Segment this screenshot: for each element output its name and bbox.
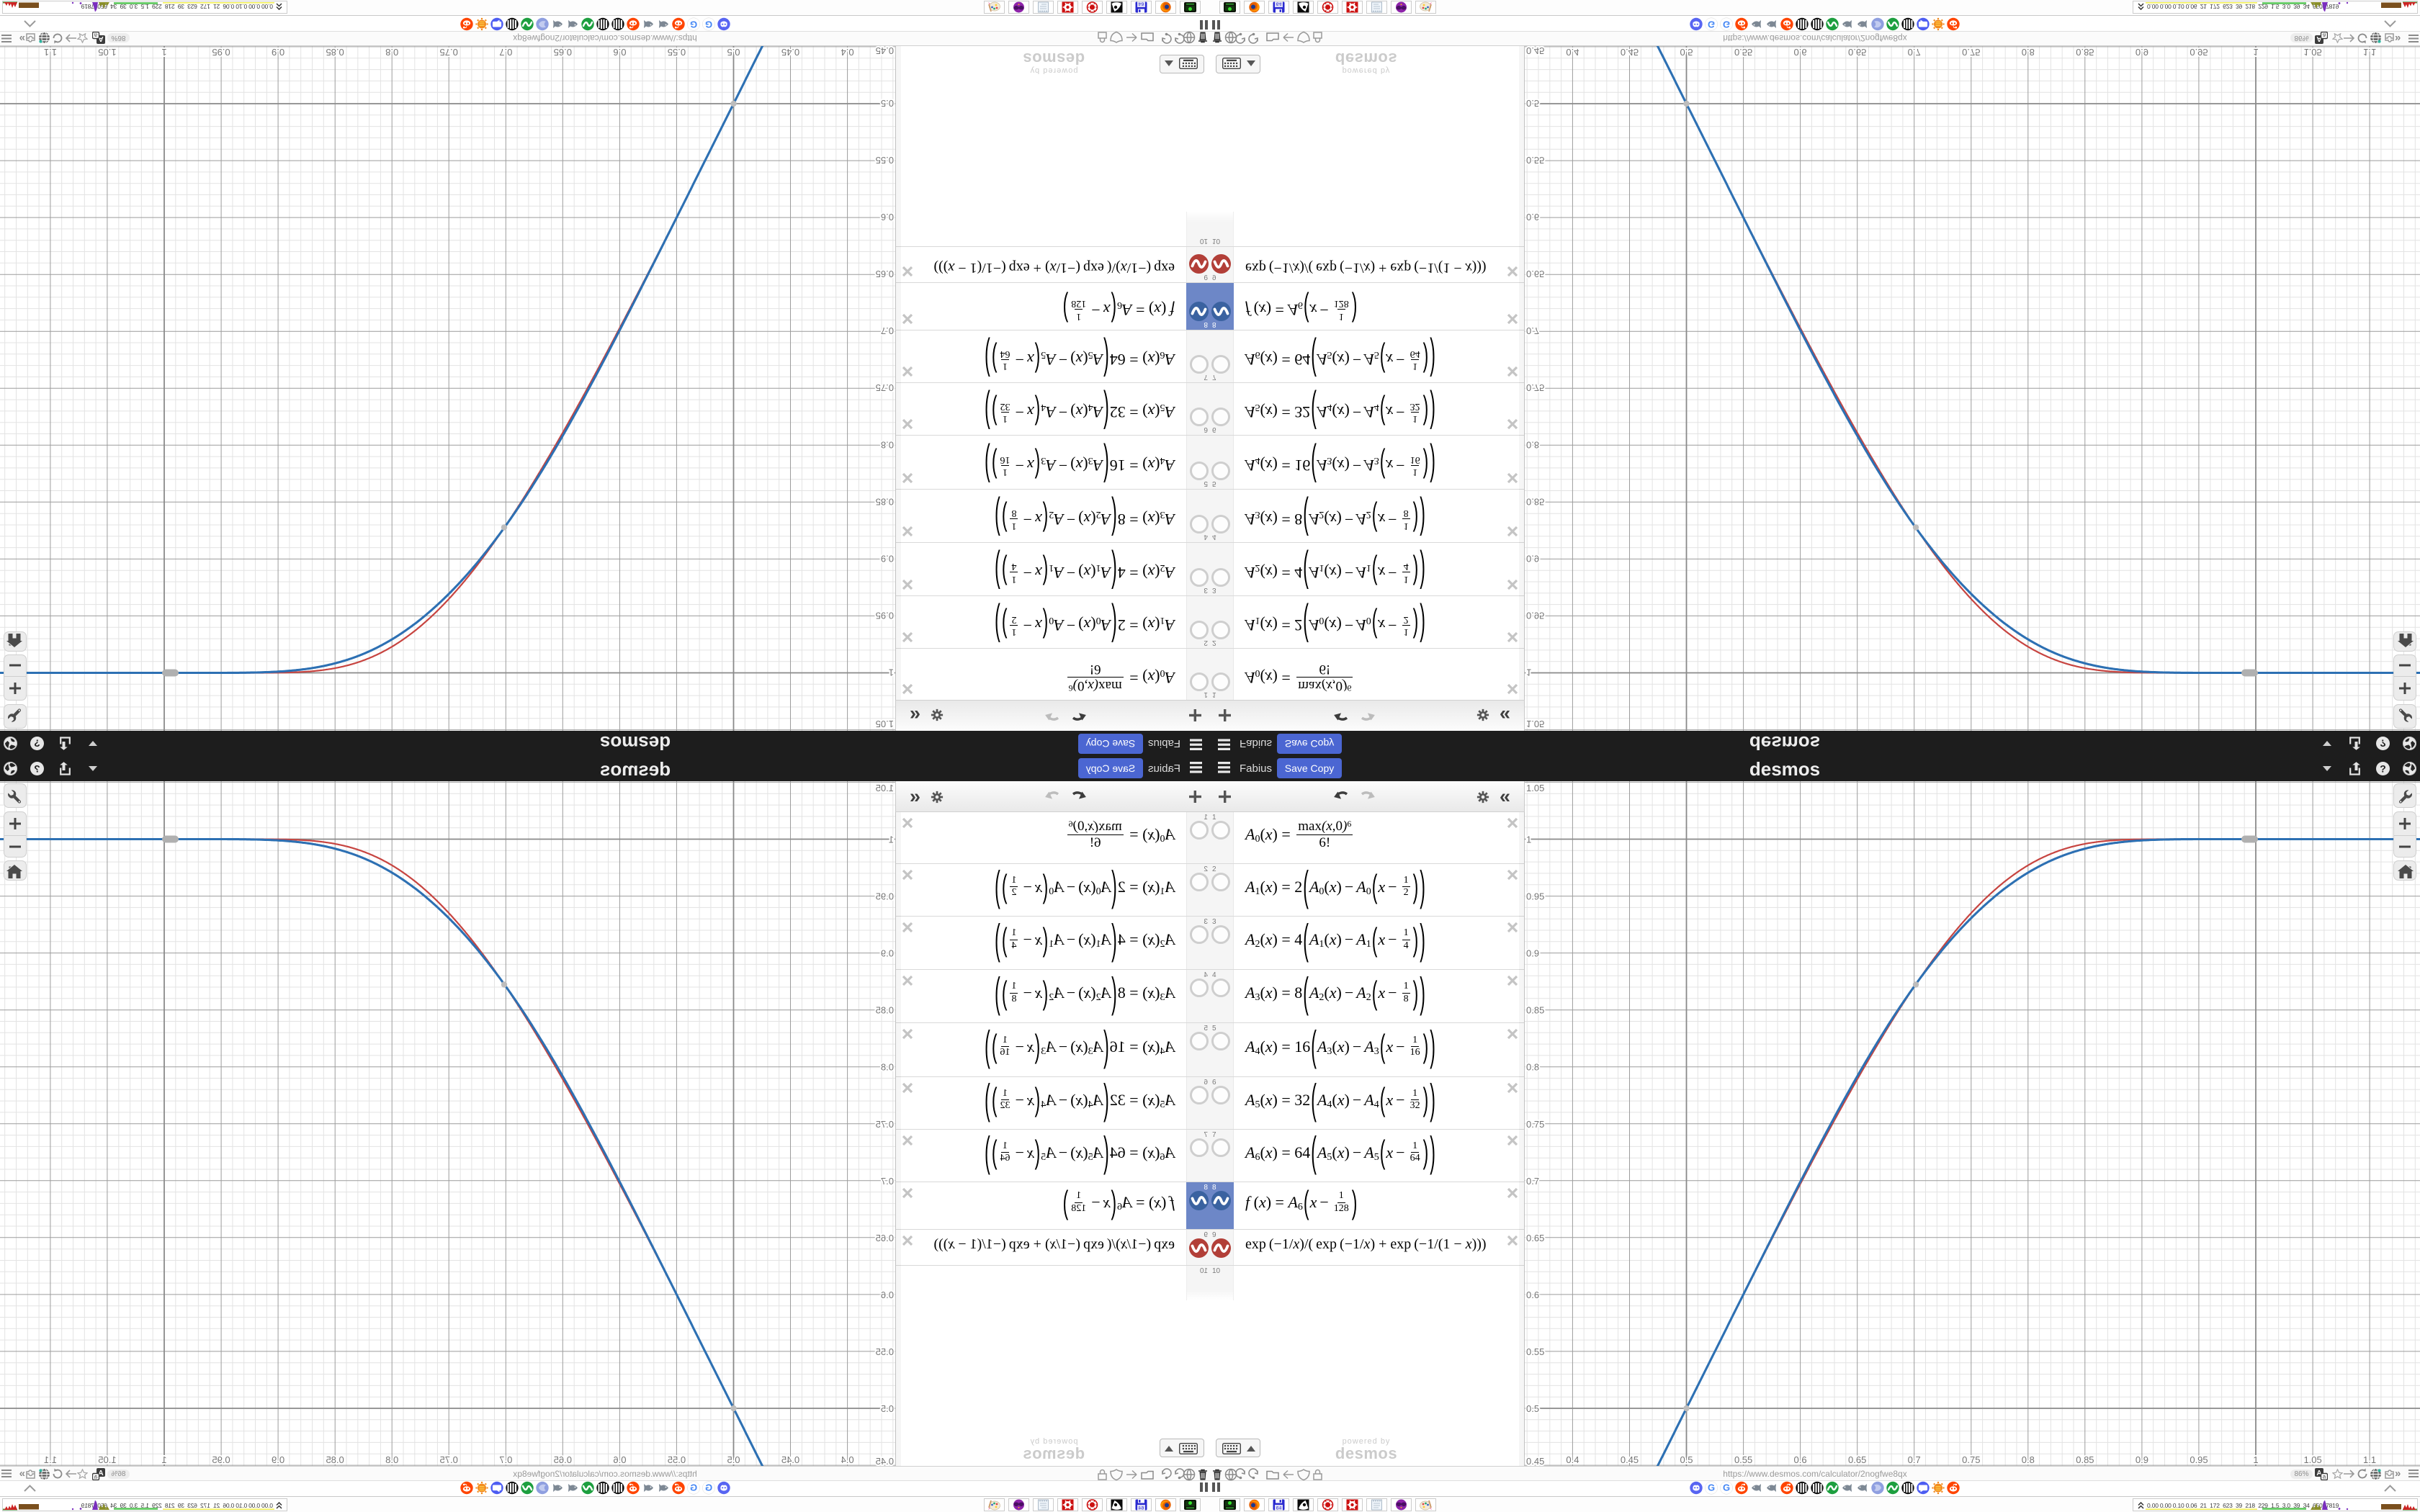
svg-text:0.5: 0.5 [727, 1454, 740, 1465]
svg-text:0.85: 0.85 [2076, 1454, 2094, 1465]
svg-text:?: ? [34, 763, 40, 775]
svg-text:G: G [705, 1482, 712, 1493]
svg-text:64: 64 [1276, 1, 1282, 6]
svg-text:0.5: 0.5 [881, 98, 894, 109]
svg-text:0.6: 0.6 [1794, 1454, 1807, 1465]
svg-text:?: ? [2380, 763, 2386, 775]
svg-text:0.85: 0.85 [326, 47, 344, 58]
svg-text:0.45: 0.45 [1526, 46, 1544, 56]
svg-text:0.65: 0.65 [876, 1233, 894, 1243]
svg-text:1: 1 [1526, 834, 1531, 845]
svg-text:1.05: 1.05 [876, 719, 894, 729]
svg-text:0.95: 0.95 [212, 47, 230, 58]
svg-text:1.05: 1.05 [1526, 783, 1544, 793]
svg-text:0.5: 0.5 [1526, 1403, 1539, 1414]
svg-text:0.5: 0.5 [1680, 1454, 1693, 1465]
svg-text:G: G [1708, 19, 1715, 30]
svg-text:0.45: 0.45 [781, 1454, 799, 1465]
svg-text:?: ? [34, 738, 40, 750]
svg-text:1.05: 1.05 [2303, 1454, 2321, 1465]
svg-text:0.75: 0.75 [876, 1119, 894, 1130]
svg-text:0.45: 0.45 [1621, 47, 1639, 58]
svg-text:0.4: 0.4 [841, 1454, 854, 1465]
svg-text:a: a [2323, 1474, 2326, 1480]
svg-text:1: 1 [889, 667, 894, 678]
svg-text:0.5: 0.5 [727, 47, 740, 58]
svg-text:0.95: 0.95 [212, 1454, 230, 1465]
svg-text:G: G [1723, 19, 1730, 30]
svg-text:1.1: 1.1 [2363, 1454, 2376, 1465]
svg-text:0.7: 0.7 [1908, 47, 1921, 58]
svg-text:0.75: 0.75 [1526, 1119, 1544, 1130]
svg-text:0.95: 0.95 [876, 610, 894, 621]
svg-text:64: 64 [1276, 1506, 1282, 1511]
svg-text:0.75: 0.75 [876, 382, 894, 393]
svg-text:1.05: 1.05 [1526, 719, 1544, 729]
svg-text:0.8: 0.8 [385, 47, 398, 58]
svg-text:0.7: 0.7 [1526, 1176, 1539, 1187]
svg-text:0.55: 0.55 [1734, 1454, 1752, 1465]
svg-text:0.55: 0.55 [876, 1346, 894, 1357]
svg-text:0.95: 0.95 [1526, 610, 1544, 621]
svg-text:0.85: 0.85 [1526, 1005, 1544, 1016]
svg-text:0.85: 0.85 [326, 1454, 344, 1465]
svg-text:1.05: 1.05 [98, 1454, 116, 1465]
svg-text:0.55: 0.55 [1526, 1346, 1544, 1357]
svg-text:0.65: 0.65 [554, 47, 572, 58]
svg-text:0.7: 0.7 [499, 1454, 512, 1465]
svg-text:0.85: 0.85 [2076, 47, 2094, 58]
svg-text:0.9: 0.9 [881, 948, 894, 959]
svg-text:0.8: 0.8 [881, 1062, 894, 1073]
svg-text:0.65: 0.65 [1848, 1454, 1866, 1465]
svg-text:0.4: 0.4 [841, 47, 854, 58]
svg-text:0.9: 0.9 [2136, 1454, 2148, 1465]
svg-text:0.95: 0.95 [2190, 1454, 2208, 1465]
svg-text:0.45: 0.45 [781, 47, 799, 58]
svg-text:0.5: 0.5 [881, 1403, 894, 1414]
svg-text:0.6: 0.6 [1526, 212, 1539, 222]
svg-text:64: 64 [1139, 1506, 1144, 1511]
svg-text:a: a [94, 1474, 97, 1480]
svg-text:a: a [2323, 32, 2326, 38]
svg-text:0.95: 0.95 [2190, 47, 2208, 58]
svg-text:0.5: 0.5 [1680, 47, 1693, 58]
svg-text:0.9: 0.9 [272, 47, 284, 58]
svg-text:G: G [690, 1482, 697, 1493]
svg-text:0.7: 0.7 [881, 325, 894, 336]
svg-text:0.45: 0.45 [876, 1456, 894, 1466]
svg-text:0.8: 0.8 [2022, 1454, 2035, 1465]
svg-text:0.9: 0.9 [272, 1454, 284, 1465]
svg-text:1.05: 1.05 [98, 47, 116, 58]
svg-text:0.95: 0.95 [1526, 891, 1544, 902]
svg-text:0.75: 0.75 [1962, 1454, 1980, 1465]
svg-text:G: G [705, 19, 712, 30]
svg-text:0.6: 0.6 [1526, 1290, 1539, 1300]
svg-text:0.6: 0.6 [1794, 47, 1807, 58]
svg-text:0.4: 0.4 [1566, 47, 1579, 58]
svg-text:0.55: 0.55 [876, 155, 894, 166]
svg-text:0.45: 0.45 [876, 46, 894, 56]
svg-text:?: ? [2380, 738, 2386, 750]
svg-text:0.8: 0.8 [2022, 47, 2035, 58]
svg-text:1: 1 [1526, 667, 1531, 678]
svg-text:0.7: 0.7 [1526, 325, 1539, 336]
svg-text:0.9: 0.9 [2136, 47, 2148, 58]
svg-text:0.65: 0.65 [554, 1454, 572, 1465]
svg-text:G: G [690, 19, 697, 30]
svg-text:1.1: 1.1 [44, 1454, 57, 1465]
svg-text:G: G [1708, 1482, 1715, 1493]
svg-text:0.8: 0.8 [881, 439, 894, 450]
svg-text:0.9: 0.9 [881, 553, 894, 564]
svg-text:0.6: 0.6 [881, 1290, 894, 1300]
svg-text:0.95: 0.95 [876, 891, 894, 902]
svg-text:0.6: 0.6 [613, 47, 626, 58]
svg-text:1.1: 1.1 [2363, 47, 2376, 58]
svg-text:a: a [94, 32, 97, 38]
svg-text:0.4: 0.4 [1566, 1454, 1579, 1465]
svg-text:0.55: 0.55 [668, 47, 686, 58]
svg-text:0.9: 0.9 [1526, 553, 1539, 564]
svg-text:0.85: 0.85 [876, 1005, 894, 1016]
svg-text:1.1: 1.1 [44, 47, 57, 58]
svg-text:0.85: 0.85 [1526, 496, 1544, 507]
svg-text:1.05: 1.05 [2303, 47, 2321, 58]
svg-text:0.65: 0.65 [1526, 1233, 1544, 1243]
svg-text:0.55: 0.55 [668, 1454, 686, 1465]
svg-text:0.5: 0.5 [1526, 98, 1539, 109]
svg-text:0.8: 0.8 [385, 1454, 398, 1465]
svg-text:0.85: 0.85 [876, 496, 894, 507]
svg-text:1: 1 [2253, 47, 2258, 58]
svg-text:0.75: 0.75 [1526, 382, 1544, 393]
svg-text:0.45: 0.45 [1526, 1456, 1544, 1466]
svg-text:0.75: 0.75 [440, 47, 458, 58]
svg-text:0.6: 0.6 [613, 1454, 626, 1465]
svg-text:1.05: 1.05 [876, 783, 894, 793]
svg-text:0.65: 0.65 [1848, 47, 1866, 58]
svg-text:64: 64 [1139, 1, 1144, 6]
svg-text:0.7: 0.7 [1908, 1454, 1921, 1465]
svg-text:1: 1 [161, 1454, 166, 1465]
svg-text:0.7: 0.7 [499, 47, 512, 58]
svg-text:0.75: 0.75 [440, 1454, 458, 1465]
svg-text:1: 1 [889, 834, 894, 845]
svg-text:0.55: 0.55 [1526, 155, 1544, 166]
svg-text:1: 1 [2253, 1454, 2258, 1465]
svg-text:G: G [1723, 1482, 1730, 1493]
svg-text:0.7: 0.7 [881, 1176, 894, 1187]
svg-text:0.45: 0.45 [1621, 1454, 1639, 1465]
svg-text:0.65: 0.65 [876, 269, 894, 279]
svg-text:0.55: 0.55 [1734, 47, 1752, 58]
svg-text:0.75: 0.75 [1962, 47, 1980, 58]
svg-text:0.8: 0.8 [1526, 439, 1539, 450]
svg-text:0.6: 0.6 [881, 212, 894, 222]
svg-text:0.8: 0.8 [1526, 1062, 1539, 1073]
svg-text:1: 1 [161, 47, 166, 58]
svg-text:0.65: 0.65 [1526, 269, 1544, 279]
svg-text:0.9: 0.9 [1526, 948, 1539, 959]
